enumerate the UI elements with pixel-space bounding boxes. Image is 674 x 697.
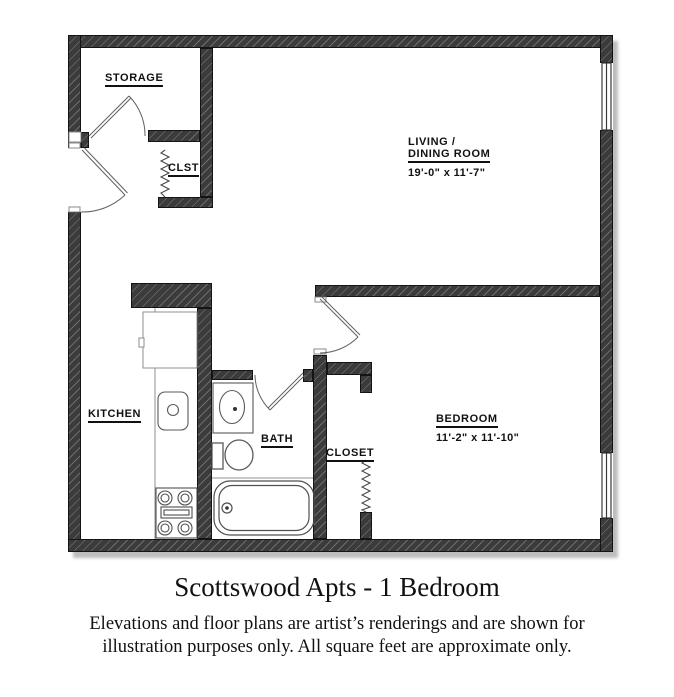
plan-title: Scottswood Apts - 1 Bedroom xyxy=(0,572,674,603)
disclaimer-text: Elevations and floor plans are artist’s … xyxy=(0,613,674,659)
floor-plan: STORAGE CLST LIVING / DINING ROOM 19'-0"… xyxy=(68,35,613,552)
living-dining-dimensions: 19'-0" x 11'-7" xyxy=(408,167,490,179)
entry-door xyxy=(81,148,128,212)
bedroom-dimensions: 11'-2" x 11'-10" xyxy=(436,432,519,444)
disclaimer-line-1: Elevations and floor plans are artist’s … xyxy=(0,613,674,636)
disclaimer-line-2: illustration purposes only. All square f… xyxy=(0,636,674,659)
bath-door xyxy=(255,373,305,410)
room-label-bath: BATH xyxy=(261,433,293,448)
room-label-clst: CLST xyxy=(168,162,199,177)
stove xyxy=(156,488,197,538)
room-label-closet: CLOSET xyxy=(326,447,374,462)
vanity-sink xyxy=(213,383,253,433)
room-label-bedroom: BEDROOM 11'-2" x 11'-10" xyxy=(436,413,519,444)
room-label-kitchen: KITCHEN xyxy=(88,408,141,423)
living-room-window xyxy=(602,63,611,130)
room-label-living-dining: LIVING / DINING ROOM 19'-0" x 11'-7" xyxy=(408,136,490,179)
toilet xyxy=(212,440,253,470)
room-label-storage: STORAGE xyxy=(105,72,163,87)
plan-linework xyxy=(68,35,613,552)
bedroom-door xyxy=(320,297,360,353)
closet-accordion-door xyxy=(362,460,370,512)
storage-door xyxy=(89,96,145,138)
kitchen-sink xyxy=(158,392,188,430)
bedroom-window xyxy=(602,453,611,518)
refrigerator xyxy=(139,312,197,368)
bathtub xyxy=(212,478,314,535)
